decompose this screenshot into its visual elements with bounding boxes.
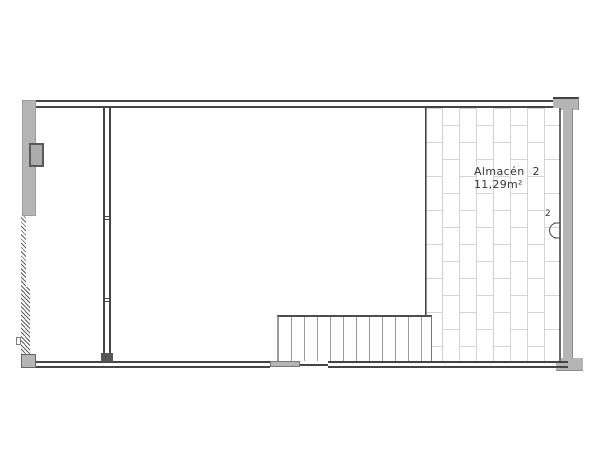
exterior-wall-bottom-left-segment: [36, 361, 270, 368]
door-threshold: [270, 361, 300, 367]
marker-arc-icon: [549, 219, 563, 243]
left-wall-column-box: [29, 143, 44, 167]
corner-block-bottom-left: [21, 354, 36, 368]
exterior-wall-bottom-right-segment: [328, 361, 568, 368]
left-wall-tick: [16, 337, 21, 345]
partition-end-cap: [101, 353, 113, 362]
room-label: Almacén 2: [474, 165, 540, 178]
partition-joint: [103, 298, 111, 302]
floor-plan-canvas: Almacén 2 11,29m² 2: [0, 0, 600, 450]
exterior-wall-right: [563, 108, 573, 358]
staircase: [277, 315, 432, 361]
room-area-label: 11,29m²: [474, 178, 523, 191]
storage-tile-area: [425, 108, 561, 361]
partition-wall: [103, 107, 111, 362]
left-wall-hatch-strip-inner: [25, 287, 30, 354]
marker-number: 2: [545, 209, 551, 219]
door-opening-line: [300, 364, 328, 366]
partition-joint: [103, 216, 111, 220]
